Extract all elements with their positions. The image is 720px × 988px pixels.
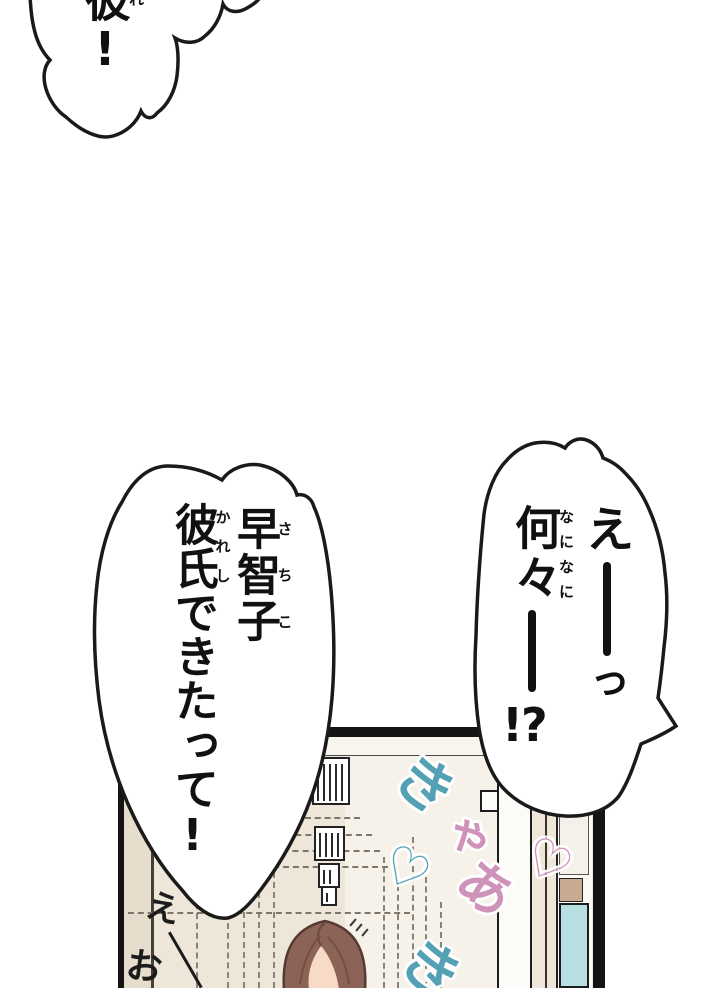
bubble-right	[475, 439, 676, 816]
speech-bubbles-layer	[0, 0, 720, 988]
bubble-left-name-column: 早智子さちこ	[232, 506, 293, 644]
elongated-dash-bar	[528, 610, 536, 692]
bubble-top-left	[28, 0, 265, 137]
bubble-top-left-furigana: れ	[127, 0, 145, 22]
name-text: 早智子	[229, 506, 280, 644]
bubble-left-phrase-column: 彼氏かれしできたって!	[170, 502, 231, 861]
bubble-right-small-tsu: っ	[590, 660, 630, 700]
what-base: 何々	[508, 504, 562, 604]
name-furigana: さちこ	[276, 506, 294, 644]
bubble-top-left-text: 彼れ!	[82, 0, 144, 76]
bubble-top-left-exclaim: !	[78, 22, 132, 76]
manga-page: え お き ゃ あ ♡ ♡ き 彼れ! 早智子さちこ 彼氏かれしできたって! え…	[0, 0, 720, 988]
bubble-right-e: え	[586, 506, 634, 554]
bubble-right-what-column: 何々なになに	[512, 504, 574, 604]
phrase-rest: できたって!	[167, 590, 218, 861]
phrase-base: 彼氏	[167, 502, 218, 590]
bubble-top-left-base: 彼	[78, 0, 132, 22]
elongated-dash-bar	[603, 562, 611, 656]
phrase-furigana: かれし	[214, 502, 232, 590]
what-furigana: なになに	[557, 504, 575, 604]
bubble-right-bang: !?	[502, 702, 546, 748]
